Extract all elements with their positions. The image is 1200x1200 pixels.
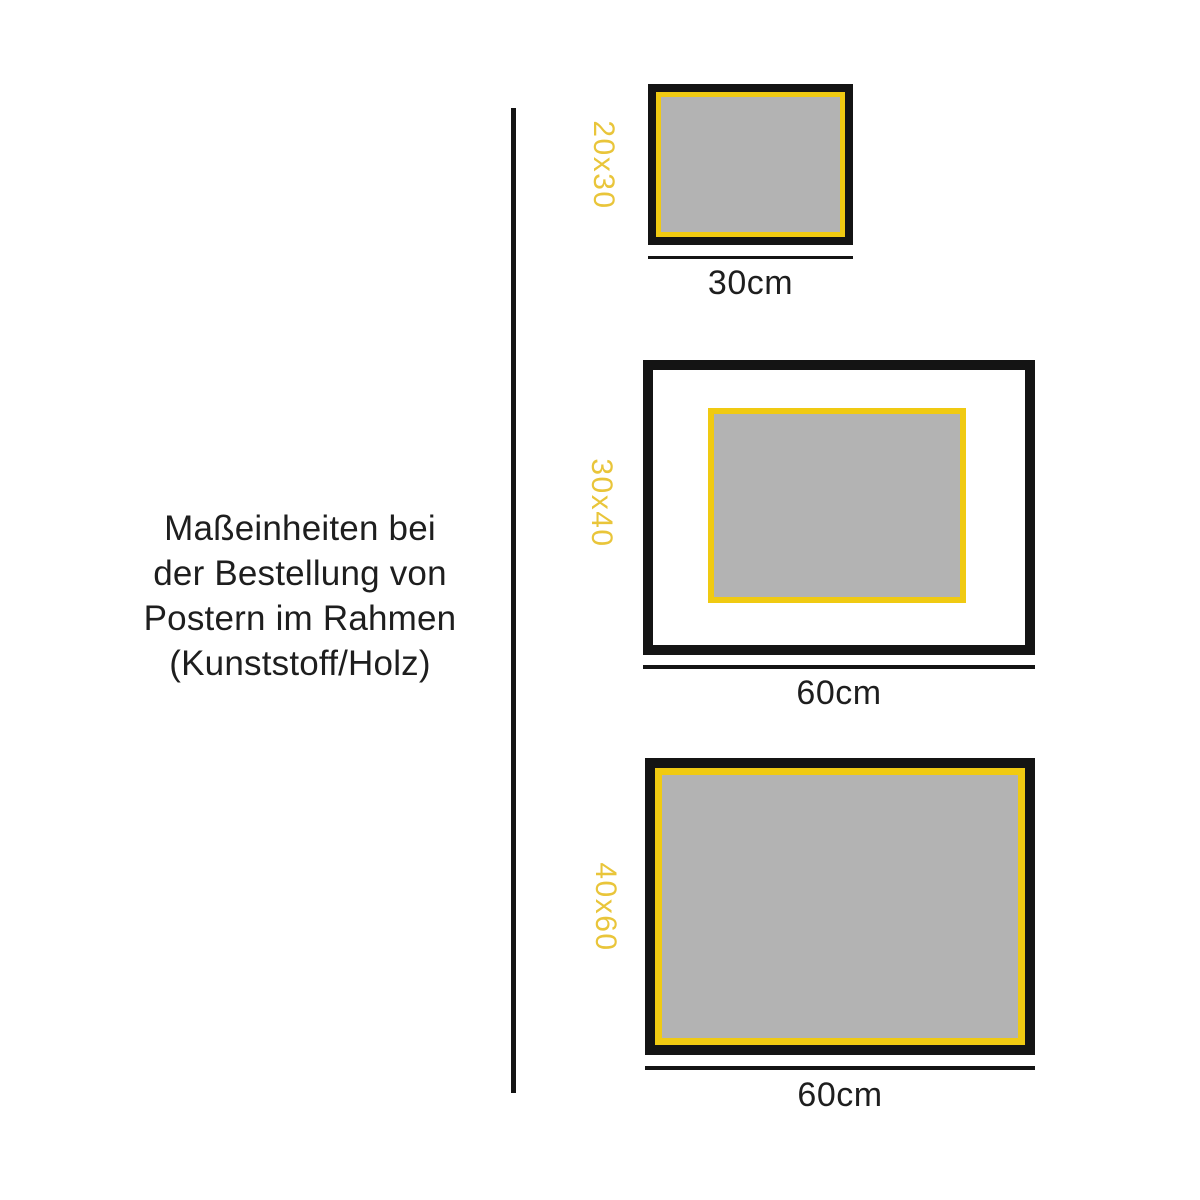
frame-40x60: [645, 758, 1035, 1055]
frame-20x30: [648, 84, 853, 245]
poster-40x60: [655, 768, 1025, 1045]
size-label-30x40: 30x40: [584, 458, 618, 547]
title-line-3: Postern im Rahmen: [55, 596, 545, 641]
vertical-divider-line: [511, 108, 516, 1093]
poster-30x40: [708, 408, 966, 603]
title-line-2: der Bestellung von: [55, 551, 545, 596]
frame-30x40: [643, 360, 1035, 655]
measure-line-20x30: [648, 256, 853, 259]
diagram-canvas: Maßeinheiten bei der Bestellung von Post…: [0, 0, 1200, 1200]
width-label-40x60: 60cm: [645, 1076, 1035, 1115]
title-line-4: (Kunststoff/Holz): [55, 641, 545, 686]
size-label-40x60: 40x60: [588, 862, 622, 951]
measure-line-30x40: [643, 665, 1035, 669]
diagram-title: Maßeinheiten bei der Bestellung von Post…: [55, 506, 545, 686]
title-line-1: Maßeinheiten bei: [55, 506, 545, 551]
width-label-30x40: 60cm: [643, 674, 1035, 713]
measure-line-40x60: [645, 1066, 1035, 1070]
size-label-20x30: 20x30: [586, 120, 620, 209]
width-label-20x30: 30cm: [648, 264, 853, 303]
poster-20x30: [656, 92, 845, 237]
